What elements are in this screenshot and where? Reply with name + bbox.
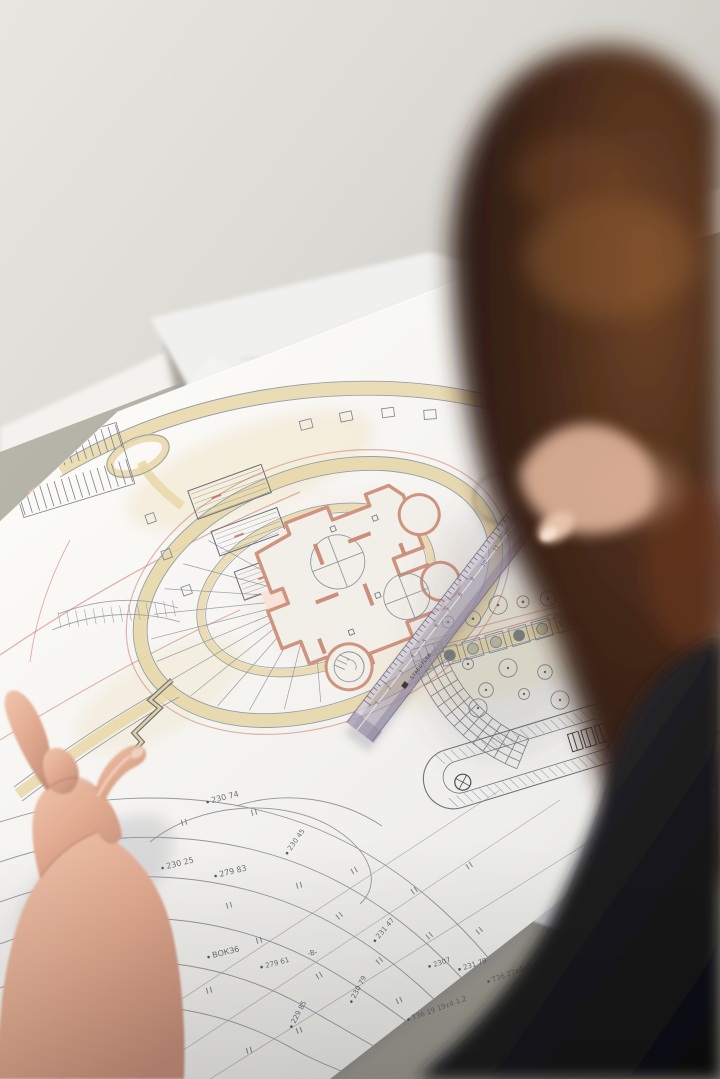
photo-scene: 230 74230 25279 83230 45ВОКЗ6229 85230 7… [0,0,720,1079]
vignette [0,0,720,1079]
